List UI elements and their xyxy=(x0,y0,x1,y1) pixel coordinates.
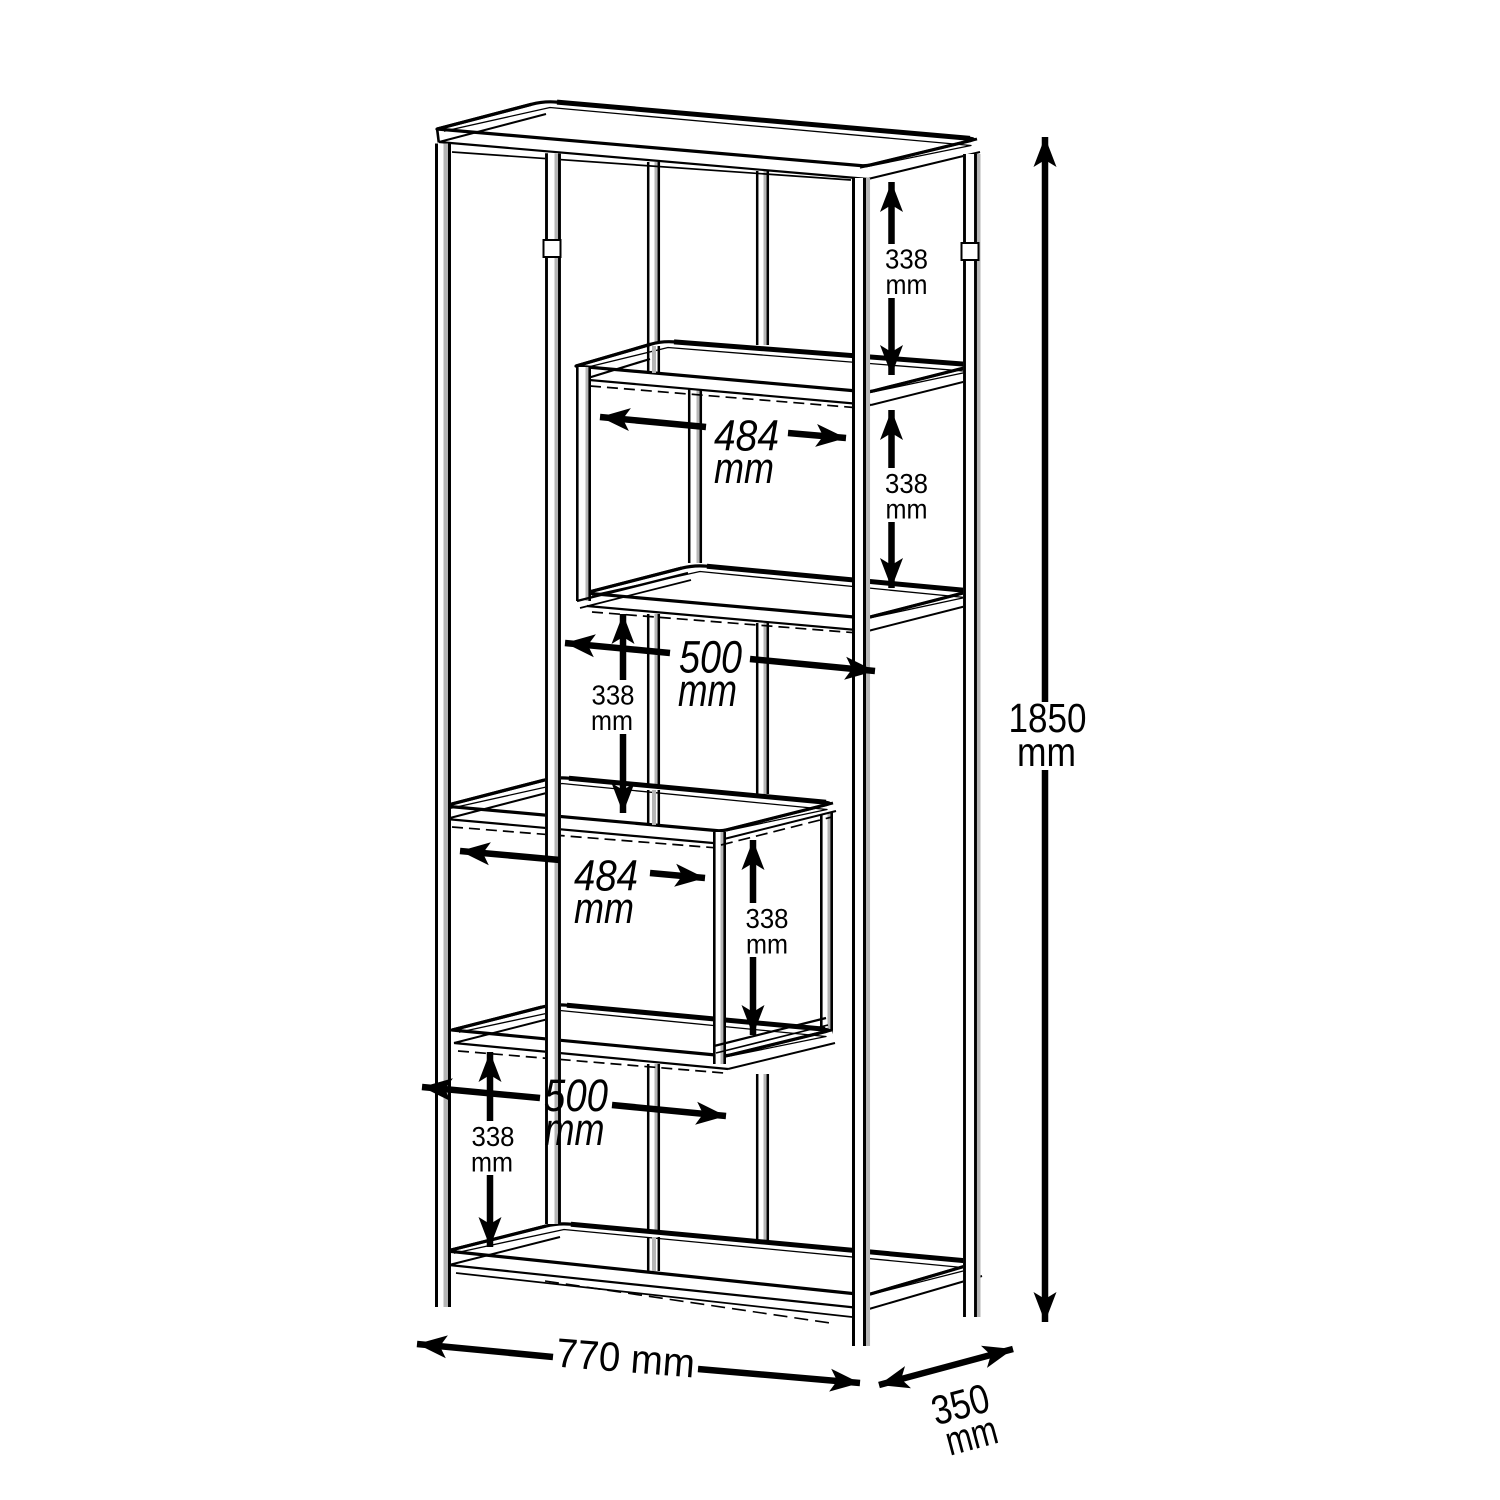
svg-text:mm: mm xyxy=(746,929,788,960)
svg-text:mm: mm xyxy=(714,444,774,493)
svg-text:mm: mm xyxy=(545,1104,605,1155)
svg-text:mm: mm xyxy=(574,884,634,933)
svg-text:mm: mm xyxy=(591,705,633,736)
svg-text:mm: mm xyxy=(678,665,737,716)
svg-text:mm: mm xyxy=(886,494,928,525)
svg-text:mm: mm xyxy=(1017,729,1076,775)
svg-text:mm: mm xyxy=(886,269,928,300)
svg-text:mm: mm xyxy=(471,1147,513,1178)
